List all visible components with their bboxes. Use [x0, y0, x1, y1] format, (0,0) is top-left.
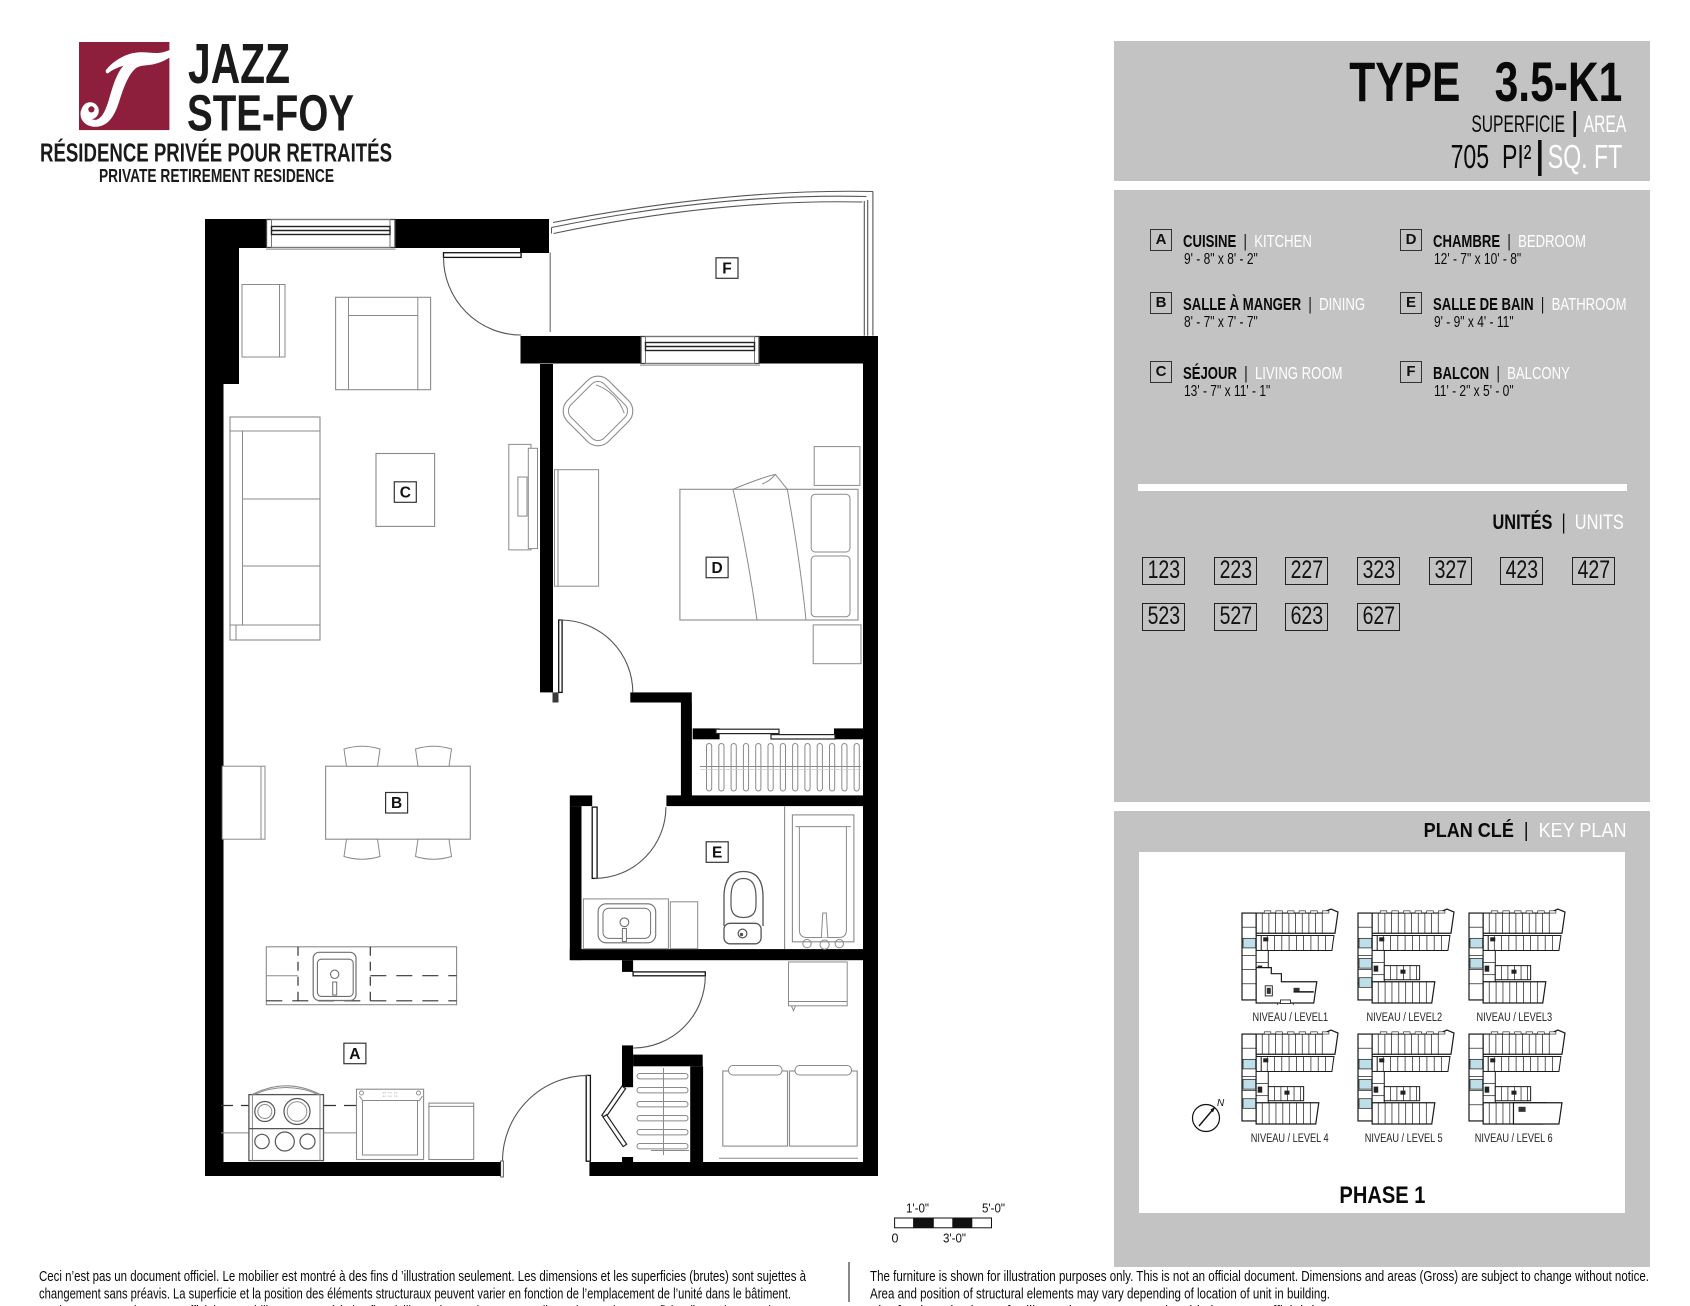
svg-text:E: E [712, 845, 722, 862]
svg-text:N: N [1217, 1098, 1225, 1109]
svg-text:F: F [722, 261, 731, 278]
svg-text:B: B [391, 795, 402, 812]
svg-text:C: C [400, 485, 411, 502]
svg-text:A: A [349, 1046, 360, 1063]
svg-text:3'-0": 3'-0" [943, 1232, 966, 1246]
svg-text:5'-0": 5'-0" [982, 1202, 1005, 1216]
svg-text:0: 0 [892, 1232, 899, 1246]
svg-text:The furniture is shown for ill: The furniture is shown for illustration … [870, 1268, 1649, 1285]
svg-text:Area and position of structura: Area and position of structural elements… [870, 1286, 1330, 1303]
svg-text::: :: ::: :: :: :: [382, 1092, 398, 1099]
svg-text:1'-0": 1'-0" [906, 1202, 929, 1216]
svg-text:D: D [711, 560, 722, 577]
